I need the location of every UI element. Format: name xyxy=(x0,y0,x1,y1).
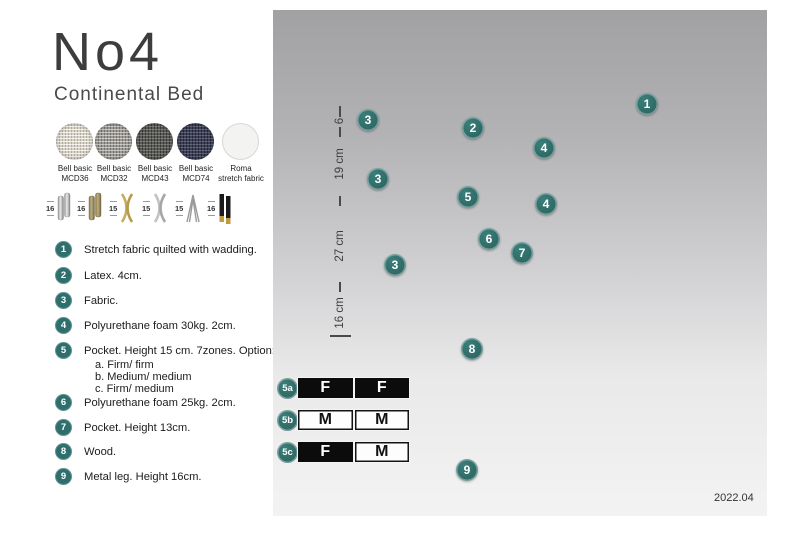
part-text: Pocket. Height 13cm. xyxy=(84,422,190,434)
callout-3c: 3 xyxy=(384,254,406,276)
leg-option-cross-gold[interactable]: 15 xyxy=(109,188,136,228)
part-number-badge: 2 xyxy=(55,267,72,284)
firmness-5a-badge: 5a xyxy=(277,378,298,399)
part-text: Polyurethane foam 30kg. 2cm. xyxy=(84,320,236,332)
part-number-badge: 1 xyxy=(55,241,72,258)
leg-option-hairpin[interactable]: 15 xyxy=(175,188,202,228)
leg-option-cylinder-silver[interactable]: 16 xyxy=(46,188,73,228)
dimension-base: 27 cm xyxy=(334,230,346,261)
firmness-5b-badge: 5b xyxy=(277,410,298,431)
leg-height-label: 15 xyxy=(142,201,150,216)
callout-2: 2 xyxy=(462,117,484,139)
cross-gold-leg-icon xyxy=(118,190,136,226)
part-number-badge: 3 xyxy=(55,292,72,309)
leg-height-label: 15 xyxy=(175,201,183,216)
callout-3a: 3 xyxy=(357,109,379,131)
part-text: Polyurethane foam 25kg. 2cm. xyxy=(84,397,236,409)
callout-8: 8 xyxy=(461,338,483,360)
callout-1: 1 xyxy=(636,93,658,115)
page-subtitle: Continental Bed xyxy=(54,84,204,106)
part-item-7: 7 Pocket. Height 13cm. xyxy=(55,419,190,436)
part-item-6: 6 Polyurethane foam 25kg. 2cm. xyxy=(55,394,236,411)
firmness-cell: F xyxy=(298,378,353,398)
fabric-swatch-mcd36[interactable] xyxy=(56,123,93,160)
firmness-row-5c: F M xyxy=(297,441,410,463)
part-item-9: 9 Metal leg. Height 16cm. xyxy=(55,468,202,485)
part-5-option-a: a. Firm/ firm xyxy=(95,359,154,371)
fabric-swatch-mcd74[interactable] xyxy=(177,123,214,160)
leg-option-cross-silver[interactable]: 15 xyxy=(142,188,169,228)
leg-option-cylinder-brass[interactable]: 16 xyxy=(77,188,104,228)
part-text: Pocket. Height 15 cm. 7zones. Option: xyxy=(84,345,275,357)
part-item-8: 8 Wood. xyxy=(55,443,116,460)
leg-option-black-gold[interactable]: 16 xyxy=(207,188,234,228)
leg-height-label: 16 xyxy=(77,201,85,216)
part-number-badge: 8 xyxy=(55,443,72,460)
fabric-swatch-mcd32[interactable] xyxy=(95,123,132,160)
dimension-tick xyxy=(339,196,341,206)
part-item-1: 1 Stretch fabric quilted with wadding. xyxy=(55,241,257,258)
leg-height-label: 16 xyxy=(207,201,215,216)
firmness-cell: M xyxy=(355,442,410,462)
part-number-badge: 4 xyxy=(55,317,72,334)
dimension-topper: 6 xyxy=(334,118,346,124)
firmness-5c-badge: 5c xyxy=(277,442,298,463)
firmness-cell: M xyxy=(298,410,353,430)
callout-4b: 4 xyxy=(535,193,557,215)
part-number-badge: 6 xyxy=(55,394,72,411)
part-number-badge: 9 xyxy=(55,468,72,485)
cylinder-brass-leg-icon xyxy=(86,190,104,226)
leg-height-label: 15 xyxy=(109,201,117,216)
part-number-badge: 7 xyxy=(55,419,72,436)
cross-silver-leg-icon xyxy=(151,190,169,226)
part-text: Metal leg. Height 16cm. xyxy=(84,471,202,483)
part-item-2: 2 Latex. 4cm. xyxy=(55,267,142,284)
dimension-tick xyxy=(339,127,341,137)
part-item-3: 3 Fabric. xyxy=(55,292,118,309)
dimension-tick xyxy=(339,106,341,117)
part-number-badge: 5 xyxy=(55,342,72,359)
fabric-swatch-mcd43[interactable] xyxy=(136,123,173,160)
callout-4a: 4 xyxy=(533,137,555,159)
leg-height-label: 16 xyxy=(46,201,54,216)
cylinder-silver-leg-icon xyxy=(55,190,73,226)
dimension-end-cap xyxy=(330,335,351,337)
firmness-row-5b: M M xyxy=(297,409,410,431)
firmness-cell: M xyxy=(355,410,410,430)
part-text: Wood. xyxy=(84,446,116,458)
part-item-5: 5 Pocket. Height 15 cm. 7zones. Option: xyxy=(55,342,275,359)
callout-5: 5 xyxy=(457,186,479,208)
part-item-4: 4 Polyurethane foam 30kg. 2cm. xyxy=(55,317,236,334)
page-title: No4 xyxy=(52,24,163,80)
version-label: 2022.04 xyxy=(714,492,754,504)
dimension-leg: 16 cm xyxy=(334,297,346,328)
callout-6: 6 xyxy=(478,228,500,250)
callout-3b: 3 xyxy=(367,168,389,190)
hairpin-leg-icon xyxy=(184,190,202,226)
callout-9: 9 xyxy=(456,459,478,481)
firmness-cell: F xyxy=(298,442,353,462)
part-5-option-b: b. Medium/ medium xyxy=(95,371,192,383)
dimension-mattress: 19 cm xyxy=(334,148,346,179)
firmness-row-5a: F F xyxy=(297,377,410,399)
part-text: Fabric. xyxy=(84,295,118,307)
fabric-label: Romastretch fabric xyxy=(214,164,268,185)
black-gold-leg-icon xyxy=(216,190,234,226)
firmness-cell: F xyxy=(355,378,410,398)
part-text: Latex. 4cm. xyxy=(84,270,142,282)
part-text: Stretch fabric quilted with wadding. xyxy=(84,244,257,256)
product-sheet: No4 Continental Bed Bell basicMCD36 Bell… xyxy=(0,0,800,533)
callout-7: 7 xyxy=(511,242,533,264)
dimension-tick xyxy=(339,282,341,292)
fabric-swatch-roma[interactable] xyxy=(222,123,259,160)
